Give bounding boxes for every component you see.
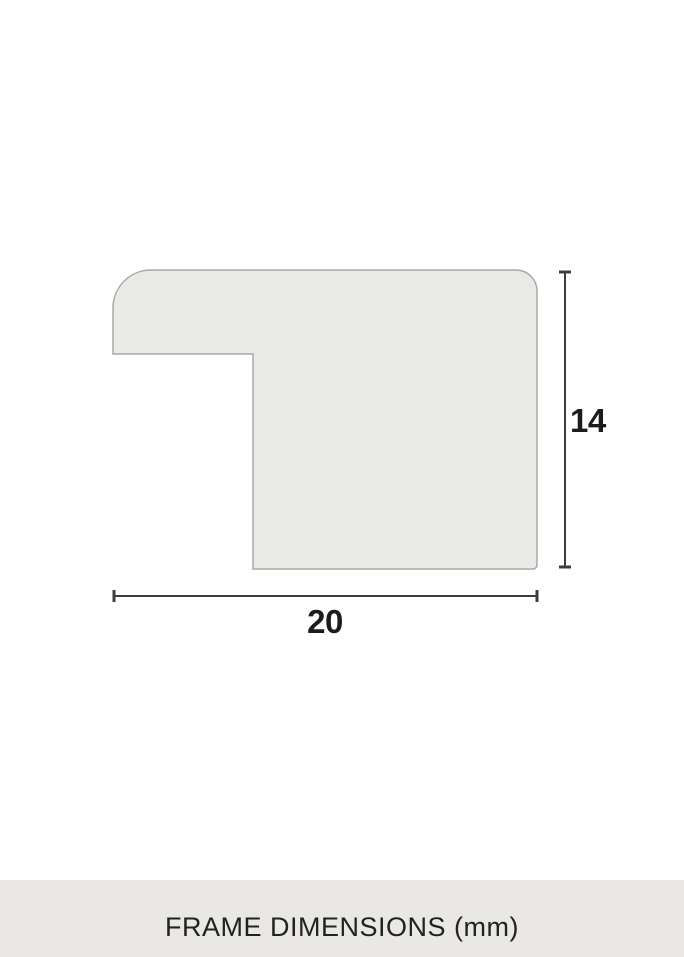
frame-profile-diagram	[0, 0, 684, 957]
width-dimension-line	[114, 590, 537, 602]
frame-profile-shape	[113, 270, 537, 569]
page: 14 20 FRAME DIMENSIONS (mm)	[0, 0, 684, 957]
height-dimension-label: 14	[570, 403, 606, 439]
width-dimension-label: 20	[285, 604, 365, 640]
footer-bar: FRAME DIMENSIONS (mm)	[0, 880, 684, 957]
footer-title: FRAME DIMENSIONS (mm)	[165, 912, 519, 943]
